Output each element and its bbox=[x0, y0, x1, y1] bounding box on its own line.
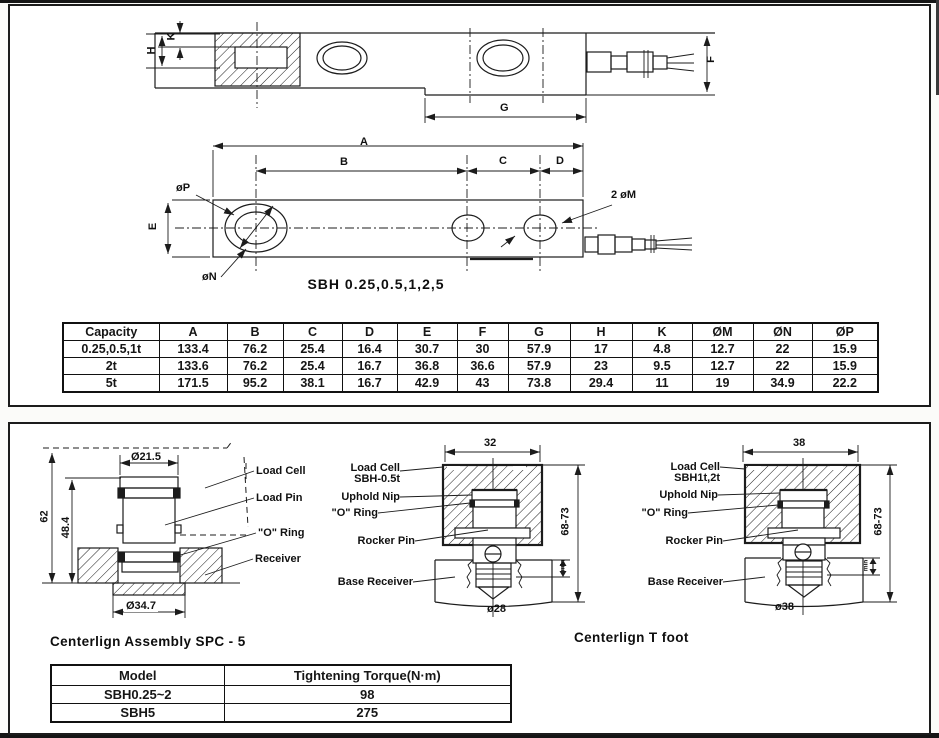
col-header: G bbox=[508, 323, 570, 341]
dim-label-f: F bbox=[706, 56, 717, 63]
dim-label-width-32: 32 bbox=[484, 438, 496, 449]
dim-label-on: øN bbox=[202, 272, 217, 283]
col-header: Capacity bbox=[63, 323, 159, 341]
col-header: Model bbox=[51, 665, 224, 686]
col-header: ØN bbox=[753, 323, 812, 341]
table-cell: SBH5 bbox=[51, 704, 224, 723]
col-header: ØM bbox=[692, 323, 753, 341]
dim-label-height-mid: 68-73 bbox=[561, 507, 572, 535]
table-cell: 16.7 bbox=[342, 358, 397, 375]
table-cell: 36.8 bbox=[397, 358, 457, 375]
table-cell: 76.2 bbox=[227, 341, 283, 358]
label-o-ring: "O" Ring bbox=[626, 508, 688, 519]
dim-label-dia-38: ø38 bbox=[775, 602, 794, 613]
table-cell: 42.9 bbox=[397, 375, 457, 393]
table-cell: 19 bbox=[692, 375, 753, 393]
table-row: 5t171.595.238.116.742.94373.829.4111934.… bbox=[63, 375, 878, 393]
dim-label-dia-top: Ø21.5 bbox=[131, 452, 161, 463]
table-cell: 12.7 bbox=[692, 358, 753, 375]
table-cell: 133.6 bbox=[159, 358, 227, 375]
dim-label-e: E bbox=[148, 223, 159, 230]
label-uphold-nip: Uphold Nip bbox=[641, 490, 718, 501]
label-o-ring: "O" Ring bbox=[258, 528, 304, 539]
table-cell: 5t bbox=[63, 375, 159, 393]
col-header: D bbox=[342, 323, 397, 341]
table-cell: 73.8 bbox=[508, 375, 570, 393]
dim-label-h: H bbox=[146, 47, 157, 55]
torque-table: ModelTightening Torque(N·m)SBH0.25~298SB… bbox=[50, 664, 512, 723]
col-header: Tightening Torque(N·m) bbox=[224, 665, 511, 686]
table-cell: 36.6 bbox=[457, 358, 508, 375]
label-model: SBH-0.5t bbox=[330, 474, 400, 485]
table-cell: 16.7 bbox=[342, 375, 397, 393]
assembly-left-caption: Centerlign Assembly SPC - 5 bbox=[50, 634, 246, 649]
table-cell: 25.4 bbox=[283, 358, 342, 375]
table-cell: 22 bbox=[753, 358, 812, 375]
table-row: 2t133.676.225.416.736.836.657.9239.512.7… bbox=[63, 358, 878, 375]
top-view-drawing bbox=[130, 135, 710, 295]
header-row: CapacityABCDEFGHKØMØNØP bbox=[63, 323, 878, 341]
label-receiver: Receiver bbox=[255, 554, 301, 565]
table-cell: 57.9 bbox=[508, 341, 570, 358]
dim-label-height-right: 68-73 bbox=[874, 507, 885, 535]
table-cell: 22.2 bbox=[812, 375, 878, 393]
table-cell: 171.5 bbox=[159, 375, 227, 393]
label-load-pin: Load Pin bbox=[256, 493, 302, 504]
table-cell: 275 bbox=[224, 704, 511, 723]
assembly-right-caption: Centerlign T foot bbox=[574, 630, 689, 645]
table-cell: 15.9 bbox=[812, 358, 878, 375]
col-header: E bbox=[397, 323, 457, 341]
label-o-ring: "O" Ring bbox=[316, 508, 378, 519]
label-rocker-pin: Rocker Pin bbox=[646, 536, 723, 547]
table-row: 0.25,0.5,1t133.476.225.416.430.73057.917… bbox=[63, 341, 878, 358]
table-cell: 34.9 bbox=[753, 375, 812, 393]
table-cell: 25.4 bbox=[283, 341, 342, 358]
table-cell: 17 bbox=[570, 341, 632, 358]
table-cell: 0.25,0.5,1t bbox=[63, 341, 159, 358]
table-cell: 38.1 bbox=[283, 375, 342, 393]
table-cell: 76.2 bbox=[227, 358, 283, 375]
dim-label-width-38: 38 bbox=[793, 438, 805, 449]
dim-label-dia-bottom: Ø34.7 bbox=[124, 601, 158, 612]
table-cell: 9.5 bbox=[632, 358, 692, 375]
dim-label-a: A bbox=[360, 137, 368, 148]
dimensions-table: CapacityABCDEFGHKØMØNØP0.25,0.5,1t133.47… bbox=[62, 322, 879, 393]
label-uphold-nip: Uphold Nip bbox=[323, 492, 400, 503]
col-header: K bbox=[632, 323, 692, 341]
scan-edge-top bbox=[0, 0, 939, 3]
dim-label-c: C bbox=[499, 156, 507, 167]
col-header: A bbox=[159, 323, 227, 341]
dim-label-g: G bbox=[500, 103, 509, 114]
dim-label-min-mid: min bbox=[559, 560, 566, 572]
dim-label-k: K bbox=[166, 33, 177, 41]
table-cell: 98 bbox=[224, 686, 511, 704]
side-view-drawing bbox=[100, 8, 740, 133]
table-cell: 30.7 bbox=[397, 341, 457, 358]
label-load-cell: Load Cell bbox=[256, 466, 306, 477]
table-cell: 30 bbox=[457, 341, 508, 358]
table-cell: 11 bbox=[632, 375, 692, 393]
table-cell: 16.4 bbox=[342, 341, 397, 358]
dim-label-484: 48.4 bbox=[61, 517, 72, 538]
dim-label-dia-28: ø28 bbox=[487, 604, 506, 615]
label-model: SBH1t,2t bbox=[653, 473, 720, 484]
col-header: B bbox=[227, 323, 283, 341]
table-cell: 43 bbox=[457, 375, 508, 393]
table-cell: 22 bbox=[753, 341, 812, 358]
dim-label-op: øP bbox=[176, 183, 190, 194]
table-cell: 4.8 bbox=[632, 341, 692, 358]
col-header: H bbox=[570, 323, 632, 341]
table-cell: SBH0.25~2 bbox=[51, 686, 224, 704]
load-cell-datasheet-page: H K G F A B C D E øP øN 2 øM SBH 0.25,0.… bbox=[0, 0, 939, 738]
col-header: F bbox=[457, 323, 508, 341]
table-cell: 57.9 bbox=[508, 358, 570, 375]
table-cell: 95.2 bbox=[227, 375, 283, 393]
dim-label-62: 62 bbox=[40, 510, 51, 522]
dim-label-d: D bbox=[556, 156, 564, 167]
model-caption: SBH 0.25,0.5,1,2,5 bbox=[286, 276, 466, 292]
table-row: SBH0.25~298 bbox=[51, 686, 511, 704]
table-cell: 133.4 bbox=[159, 341, 227, 358]
table-cell: 15.9 bbox=[812, 341, 878, 358]
col-header: C bbox=[283, 323, 342, 341]
label-base-receiver: Base Receiver bbox=[626, 577, 723, 588]
table-cell: 29.4 bbox=[570, 375, 632, 393]
table-cell: 12.7 bbox=[692, 341, 753, 358]
header-row: ModelTightening Torque(N·m) bbox=[51, 665, 511, 686]
dim-label-b: B bbox=[340, 157, 348, 168]
table-cell: 2t bbox=[63, 358, 159, 375]
table-cell: 23 bbox=[570, 358, 632, 375]
col-header: ØP bbox=[812, 323, 878, 341]
label-rocker-pin: Rocker Pin bbox=[338, 536, 415, 547]
dim-label-min-right: min bbox=[862, 560, 869, 572]
dim-label-2om: 2 øM bbox=[611, 190, 636, 201]
table-row: SBH5275 bbox=[51, 704, 511, 723]
label-base-receiver: Base Receiver bbox=[316, 577, 413, 588]
